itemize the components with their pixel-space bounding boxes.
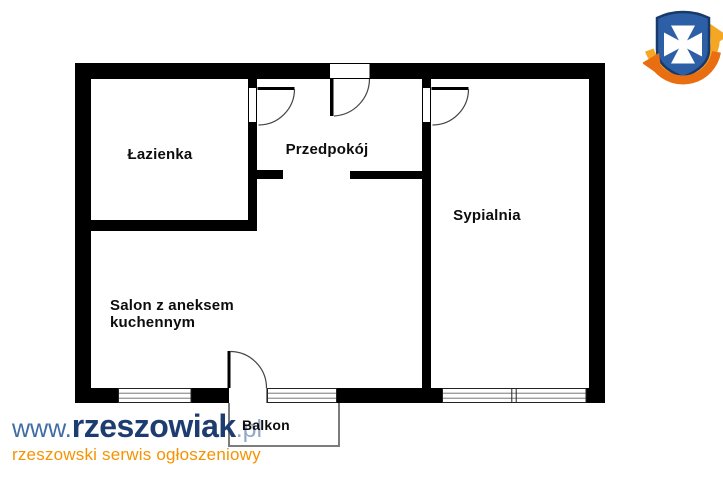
room-label-hallway: Przedpokój: [275, 141, 379, 158]
room-label-living-room-line2: kuchennym: [110, 314, 234, 331]
room-label-bedroom: Sypialnia: [435, 207, 539, 224]
room-label-living-room: Salon z aneksem kuchennym: [110, 297, 234, 331]
bedroom-door-arc: [433, 89, 469, 125]
rzeszowiak-logo: [643, 4, 723, 88]
living-room-window-2: [268, 389, 337, 403]
entrance-door-frame: [330, 64, 371, 79]
watermark: www.rzeszowiak.pl rzeszowski serwis ogło…: [12, 410, 262, 465]
entrance-door-leaf: [330, 79, 334, 116]
bedroom-door-leaf: [432, 87, 469, 90]
balcony-door-opening: [229, 388, 267, 403]
room-label-living-room-line1: Salon z aneksem: [110, 297, 234, 314]
logo-arrow-top-head-icon: [709, 23, 723, 47]
room-label-bathroom: Łazienka: [108, 146, 212, 163]
balcony-door-arc: [230, 352, 267, 389]
watermark-www: www.: [12, 415, 72, 443]
bathroom-door-leaf: [258, 87, 295, 90]
floor-plan-image: www.rzeszowiak.pl rzeszowski serwis ogło…: [0, 0, 723, 479]
bathroom-door-arc: [259, 89, 295, 125]
bedroom-door-frame: [423, 88, 431, 123]
watermark-tagline: rzeszowski serwis ogłoszeniowy: [12, 445, 262, 465]
room-label-balcony: Balkon: [242, 417, 290, 433]
entrance-door-arc: [334, 79, 370, 116]
bedroom-window: [443, 389, 587, 403]
watermark-url: www.rzeszowiak.pl: [12, 410, 262, 442]
living-room-window-1: [119, 389, 192, 403]
bathroom-door-frame: [249, 88, 257, 123]
balcony-door-leaf: [228, 351, 231, 388]
watermark-brand: rzeszowiak: [72, 408, 236, 444]
rzeszowiak-logo-graphic: [643, 4, 723, 88]
